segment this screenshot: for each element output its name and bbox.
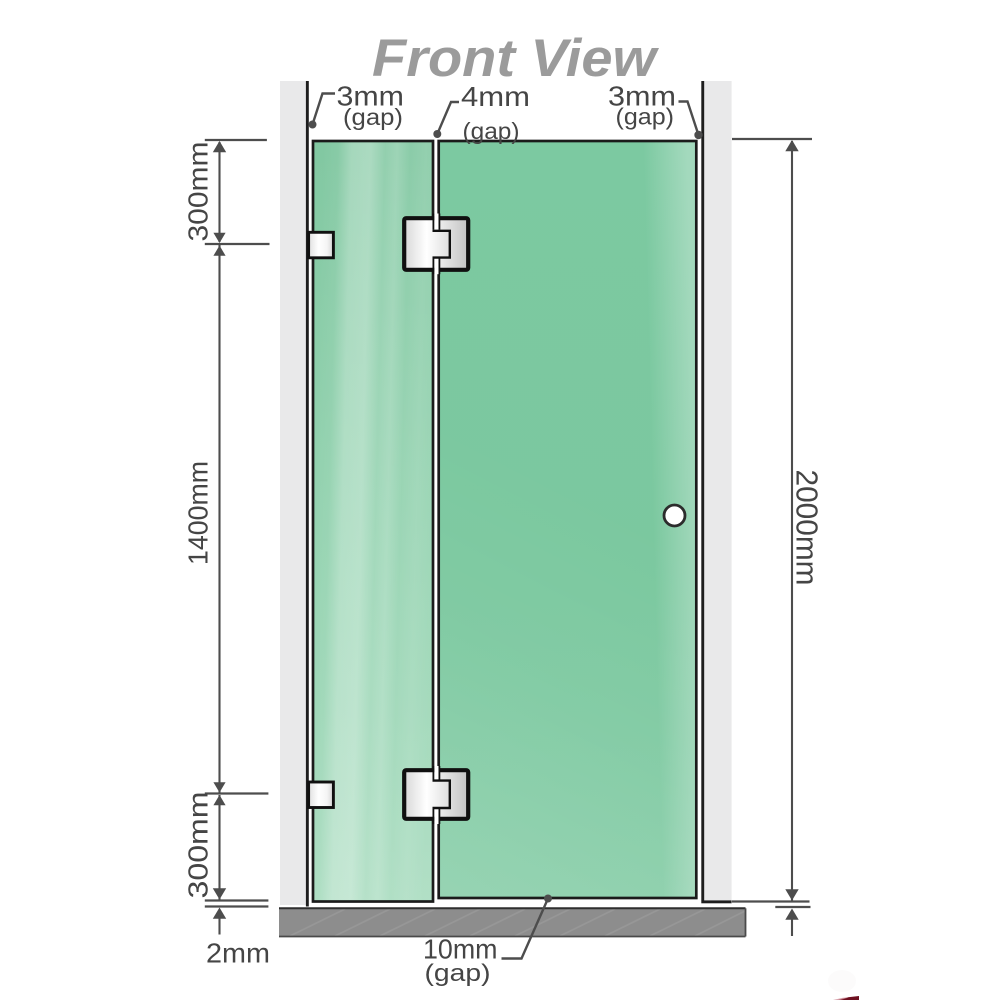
svg-text:(gap): (gap) bbox=[343, 104, 403, 130]
svg-text:Front View: Front View bbox=[372, 29, 660, 88]
svg-text:300mm: 300mm bbox=[183, 142, 214, 242]
svg-text:4mm: 4mm bbox=[461, 81, 530, 112]
svg-text:(gap): (gap) bbox=[463, 118, 520, 144]
svg-text:(gap): (gap) bbox=[425, 960, 491, 987]
svg-text:300mm: 300mm bbox=[183, 792, 214, 899]
svg-text:(gap): (gap) bbox=[616, 104, 675, 130]
svg-text:2000mm: 2000mm bbox=[790, 470, 825, 586]
svg-text:1400mm: 1400mm bbox=[183, 461, 214, 565]
svg-text:2mm: 2mm bbox=[206, 938, 270, 969]
